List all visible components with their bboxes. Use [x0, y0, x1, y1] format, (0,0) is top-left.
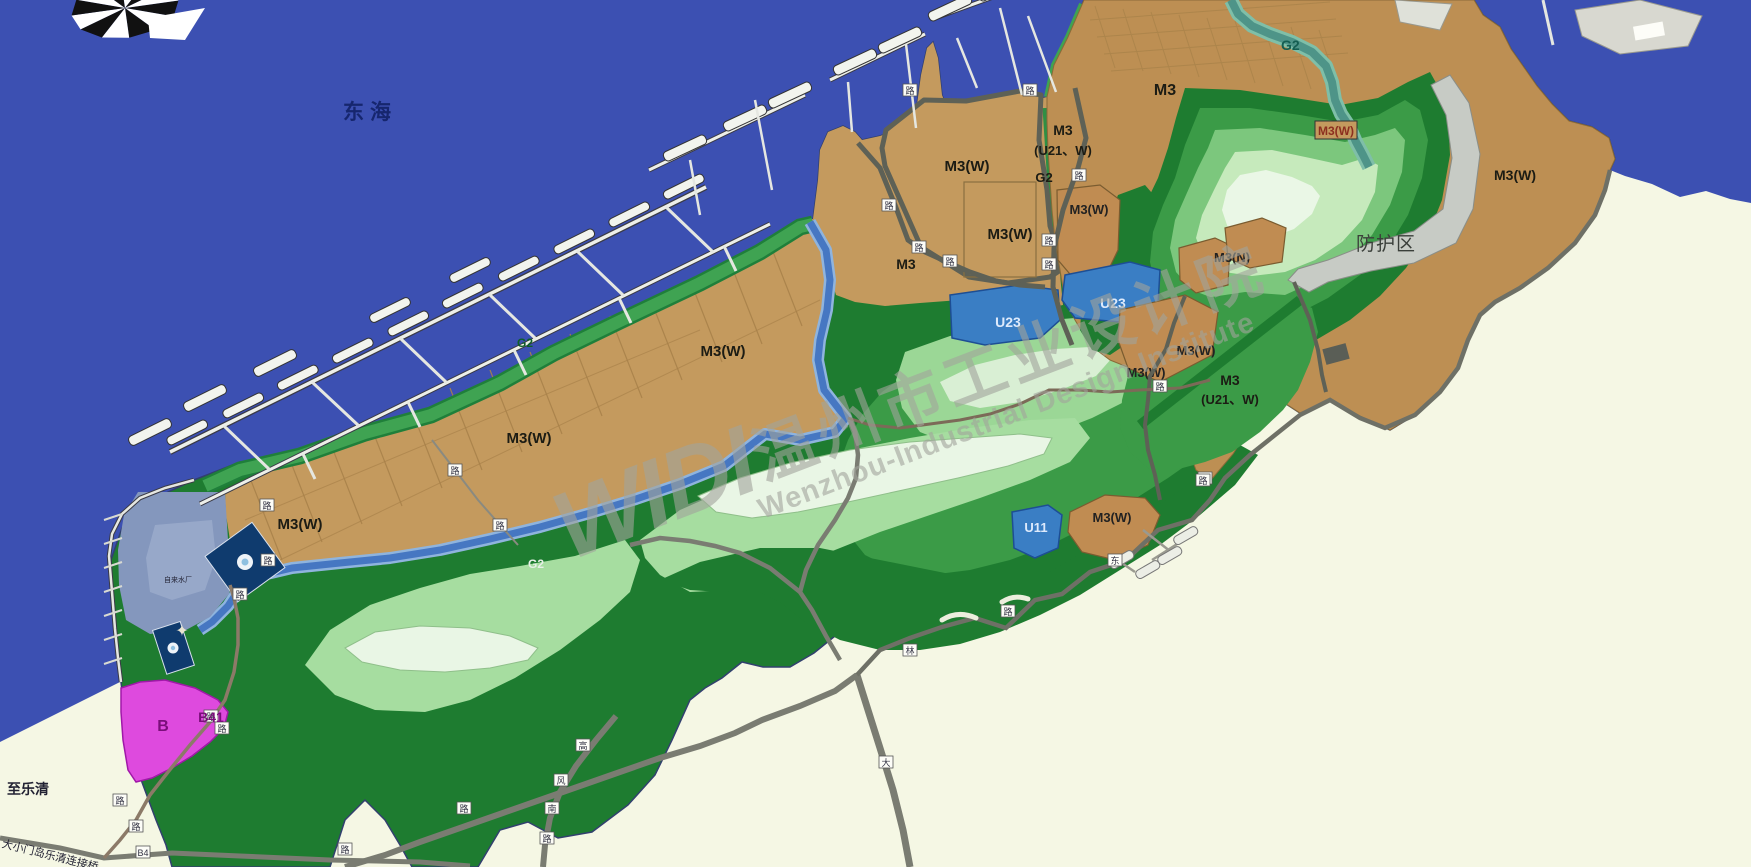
svg-text:M3(W): M3(W) [507, 430, 552, 447]
svg-text:高: 高 [578, 740, 587, 751]
svg-text:路: 路 [262, 500, 271, 511]
svg-text:自来水厂: 自来水厂 [164, 575, 192, 584]
svg-text:路: 路 [340, 844, 349, 855]
svg-text:M3(W): M3(W) [945, 158, 990, 175]
svg-text:B: B [157, 718, 169, 735]
svg-text:路: 路 [459, 803, 468, 814]
svg-text:大: 大 [881, 757, 890, 768]
svg-text:M3: M3 [1154, 82, 1176, 99]
svg-text:路: 路 [1074, 170, 1083, 181]
svg-text:M3(W): M3(W) [1494, 167, 1536, 183]
svg-text:路: 路 [905, 85, 914, 96]
svg-text:G2: G2 [1035, 170, 1052, 185]
svg-text:路: 路 [1044, 259, 1053, 270]
svg-text:M3(W): M3(W) [1318, 124, 1354, 138]
svg-text:路: 路 [1044, 235, 1053, 246]
svg-text:路: 路 [1003, 606, 1012, 617]
svg-text:M3: M3 [1053, 122, 1073, 138]
svg-text:东海: 东海 [343, 100, 397, 124]
svg-text:M3: M3 [1220, 372, 1240, 388]
svg-text:路: 路 [263, 555, 272, 566]
svg-text:路: 路 [1025, 85, 1034, 96]
svg-text:路: 路 [495, 520, 504, 531]
svg-text:南: 南 [547, 803, 556, 814]
svg-text:G2: G2 [517, 336, 533, 350]
svg-text:M3(W): M3(W) [1093, 510, 1132, 525]
svg-text:路: 路 [914, 242, 923, 253]
svg-text:路: 路 [542, 833, 551, 844]
svg-text:✦: ✦ [175, 623, 188, 640]
svg-text:M3: M3 [896, 256, 916, 272]
svg-text:(U21、W): (U21、W) [1201, 392, 1259, 407]
svg-text:M3(W): M3(W) [278, 516, 323, 533]
svg-text:路: 路 [115, 795, 124, 806]
svg-text:M3(W): M3(W) [1070, 202, 1109, 217]
svg-text:U11: U11 [1024, 520, 1047, 535]
svg-text:M3(W): M3(W) [701, 343, 746, 360]
svg-text:路: 路 [945, 256, 954, 267]
svg-text:B4: B4 [137, 848, 148, 858]
svg-text:风: 风 [556, 776, 565, 786]
svg-text:G2: G2 [528, 557, 544, 571]
svg-text:B41: B41 [198, 709, 224, 725]
svg-text:林: 林 [905, 645, 914, 656]
svg-text:东: 东 [1110, 555, 1119, 566]
svg-text:路: 路 [235, 589, 244, 600]
svg-text:路: 路 [131, 821, 140, 832]
svg-text:M3(W): M3(W) [988, 226, 1033, 243]
svg-text:路: 路 [884, 200, 893, 211]
svg-text:防护区: 防护区 [1356, 233, 1416, 255]
svg-text:G2: G2 [1281, 37, 1300, 53]
svg-text:至乐清: 至乐清 [7, 781, 49, 797]
svg-text:(U21、W): (U21、W) [1034, 143, 1092, 158]
svg-text:路: 路 [1155, 381, 1164, 392]
svg-text:路: 路 [450, 465, 459, 476]
svg-text:路: 路 [1198, 475, 1207, 486]
